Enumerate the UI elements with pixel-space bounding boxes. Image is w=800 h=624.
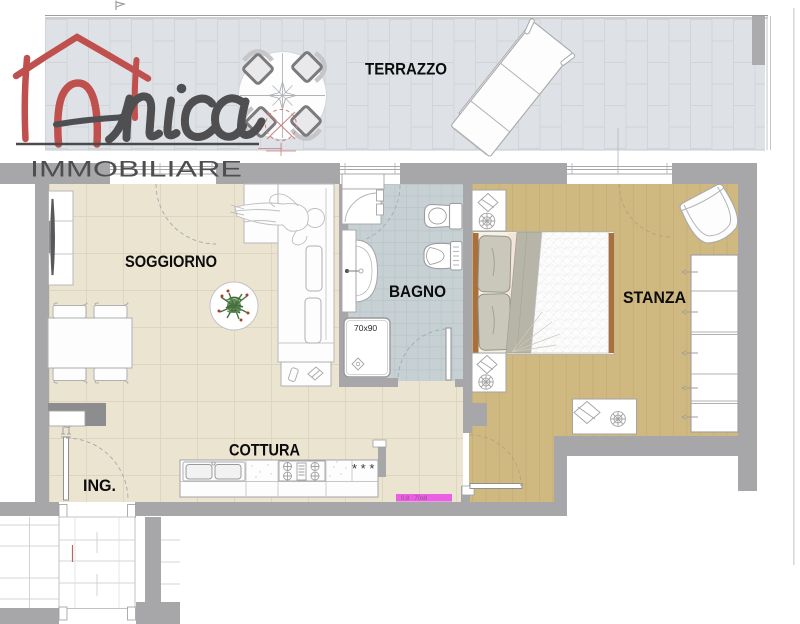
svg-text:70x90: 70x90	[354, 323, 377, 333]
svg-text:BAGNO: BAGNO	[389, 282, 446, 301]
svg-text:IMMOBILIARE: IMMOBILIARE	[30, 157, 242, 182]
svg-text:0,8 70x8: 0,8 70x8	[401, 496, 428, 502]
svg-text:ING.: ING.	[83, 476, 116, 495]
svg-text:STANZA: STANZA	[623, 288, 686, 307]
svg-text:* * *: * * *	[352, 461, 374, 476]
svg-text:TERRAZZO: TERRAZZO	[365, 60, 447, 79]
svg-text:SOGGIORNO: SOGGIORNO	[125, 252, 217, 271]
svg-text:COTTURA: COTTURA	[229, 441, 300, 460]
